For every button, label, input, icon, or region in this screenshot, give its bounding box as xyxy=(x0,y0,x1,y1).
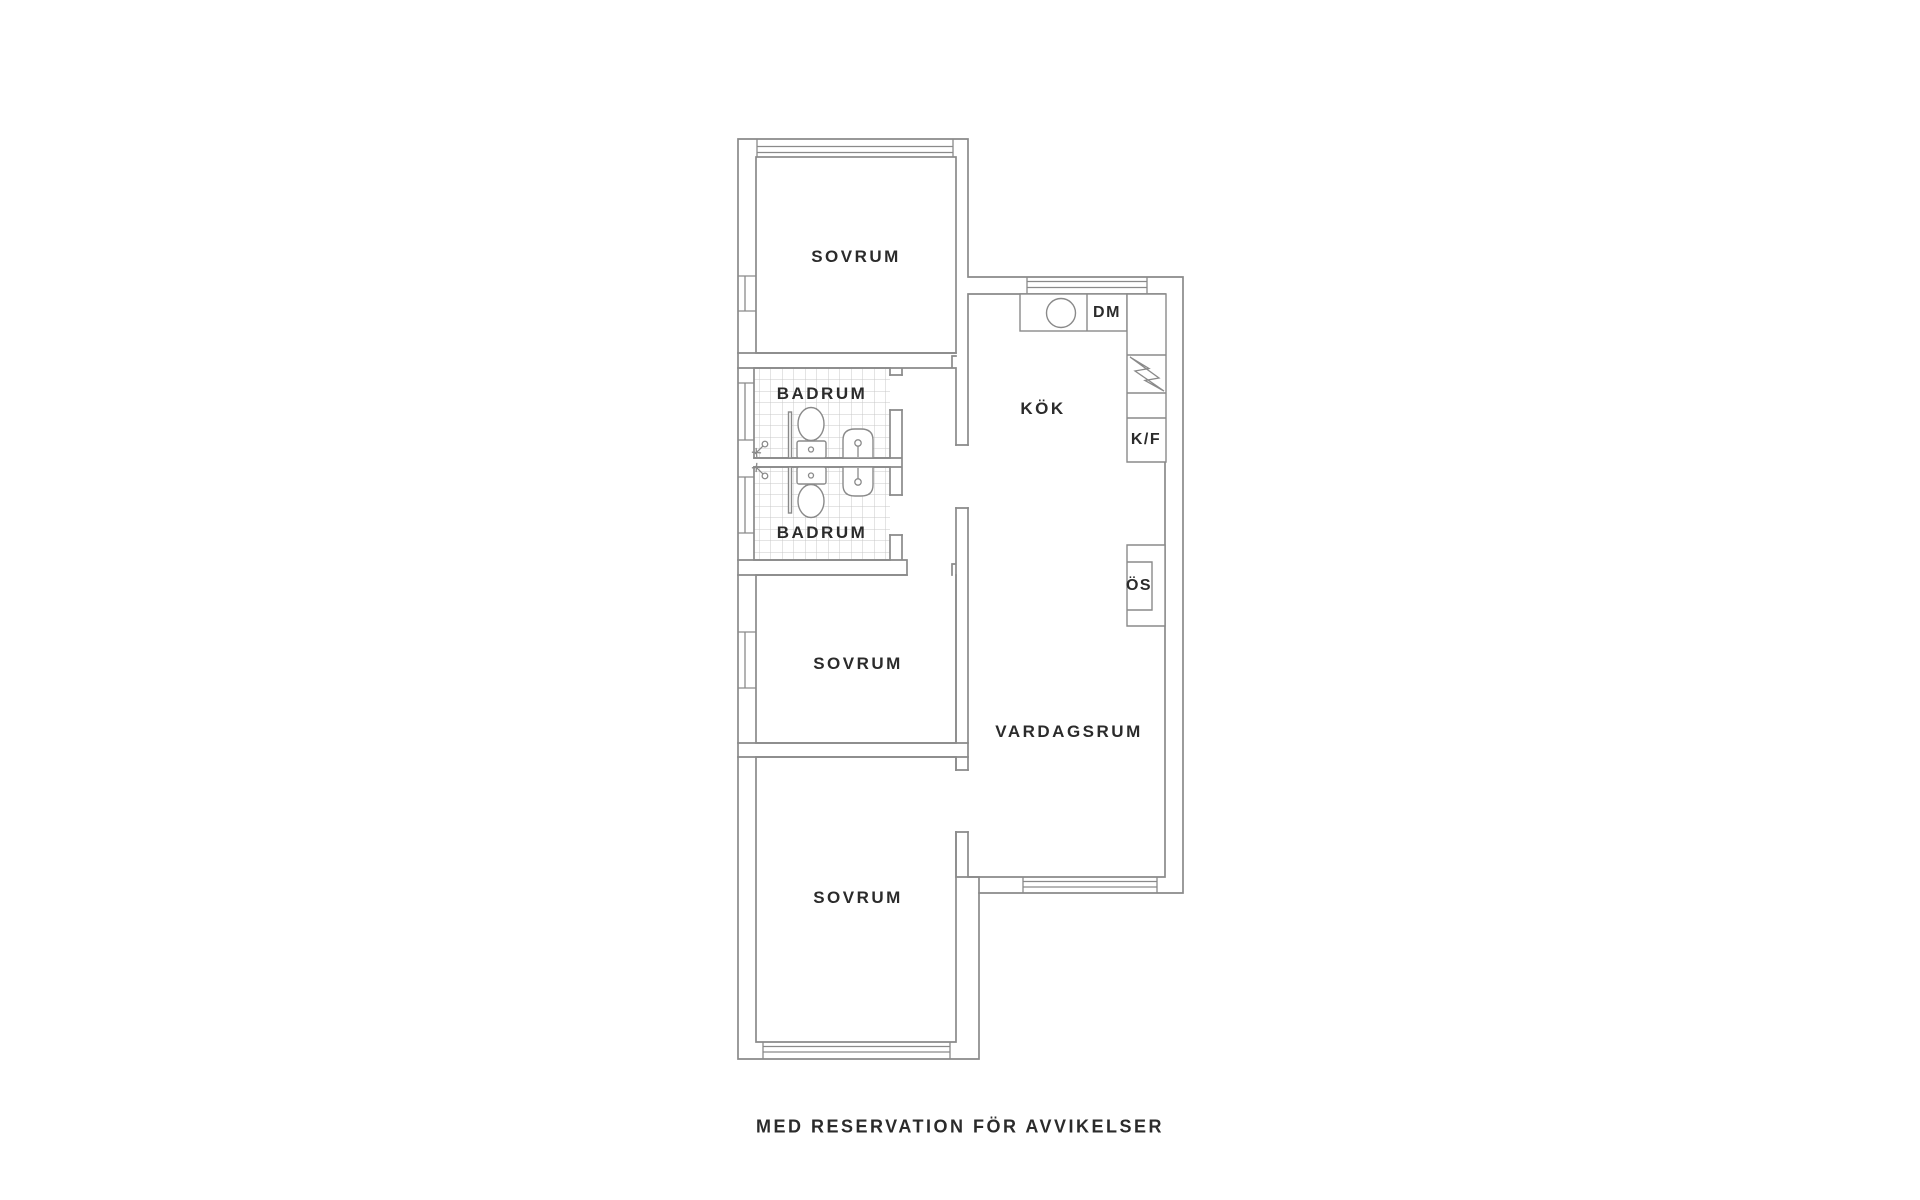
floorplan-page: SOVRUM BADRUM BADRUM KÖK DM K/F ÖS SOVRU… xyxy=(0,0,1920,1200)
room-label-bedroom-bottom: SOVRUM xyxy=(813,888,903,908)
room-label-bathroom-bottom: BADRUM xyxy=(777,523,868,543)
kitchen-sink-icon xyxy=(1047,299,1076,328)
window-living-room xyxy=(1023,877,1157,893)
window-left-bathroom-top xyxy=(738,383,754,440)
shower-screen-top xyxy=(789,412,792,458)
appliance-label-fridge-freezer: K/F xyxy=(1131,431,1161,449)
appliance-label-dishwasher: DM xyxy=(1093,304,1121,322)
window-kitchen xyxy=(1027,277,1147,294)
room-label-bedroom-top: SOVRUM xyxy=(811,247,901,267)
toilet-tank xyxy=(797,467,826,484)
shower-screen-bottom xyxy=(789,467,792,513)
window-bottom-bedroom xyxy=(763,1042,950,1059)
room-label-kitchen: KÖK xyxy=(1020,399,1065,419)
floorplan-drawing xyxy=(0,0,1920,1200)
room-label-bedroom-middle: SOVRUM xyxy=(813,654,903,674)
toilet-tank xyxy=(797,441,826,458)
window-top-bedroom xyxy=(757,139,953,157)
outer-walls xyxy=(738,139,1183,1059)
window-left-bathroom-bottom xyxy=(738,477,754,533)
window-left-bedroom-middle xyxy=(738,632,756,688)
appliance-label-fireplace: ÖS xyxy=(1126,577,1152,595)
toilet-icon xyxy=(798,485,824,518)
room-label-living-room: VARDAGSRUM xyxy=(995,722,1142,742)
toilet-icon xyxy=(798,408,824,441)
room-label-bathroom-top: BADRUM xyxy=(777,384,868,404)
window-left-bedroom-top xyxy=(738,276,756,311)
disclaimer-caption: MED RESERVATION FÖR AVVIKELSER xyxy=(756,1117,1164,1138)
